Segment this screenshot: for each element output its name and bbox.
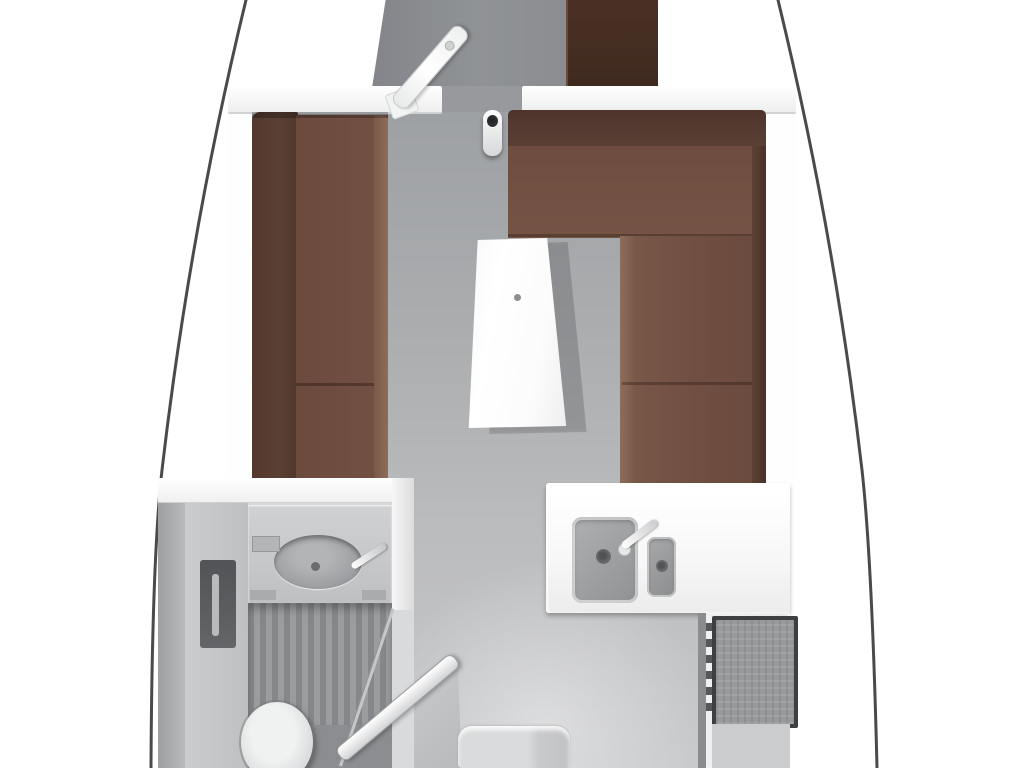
starboard-settee-backrest xyxy=(508,110,766,148)
head-hull-strip xyxy=(158,502,185,768)
stove-gimbal-hinges xyxy=(706,623,712,713)
galley xyxy=(546,483,794,768)
table-fitting xyxy=(514,294,521,301)
sink-drain xyxy=(596,549,611,564)
sink-drain xyxy=(656,560,668,572)
vanity-foot xyxy=(362,590,386,600)
cushion-seam xyxy=(622,382,764,385)
galley-worktop-aft xyxy=(712,724,790,768)
cushion-edge-highlight xyxy=(620,236,636,484)
port-settee-backrest xyxy=(252,112,298,490)
mast-post-top xyxy=(487,115,498,127)
fore-cabin-wardrobe xyxy=(566,0,658,86)
cushion-edge-highlight xyxy=(374,115,388,490)
starboard-settee-chaise xyxy=(620,236,766,484)
port-settee xyxy=(252,112,388,490)
floor-plan-canvas xyxy=(0,0,1024,768)
locker-handle xyxy=(212,574,219,636)
basin-drain xyxy=(311,562,320,571)
starboard-settee-side-backrest xyxy=(752,146,766,484)
cushion-top-shadow xyxy=(252,112,388,118)
head-forward-wall xyxy=(158,478,414,503)
head-inboard-wall xyxy=(392,478,414,610)
door-handle xyxy=(443,39,457,53)
companionway-step xyxy=(458,726,570,768)
stove-oven xyxy=(712,616,798,728)
vanity-shelf xyxy=(252,536,280,552)
starboard-settee-seat xyxy=(508,146,766,238)
galley-cabinet-side xyxy=(698,613,706,768)
vanity-foot xyxy=(250,590,276,600)
